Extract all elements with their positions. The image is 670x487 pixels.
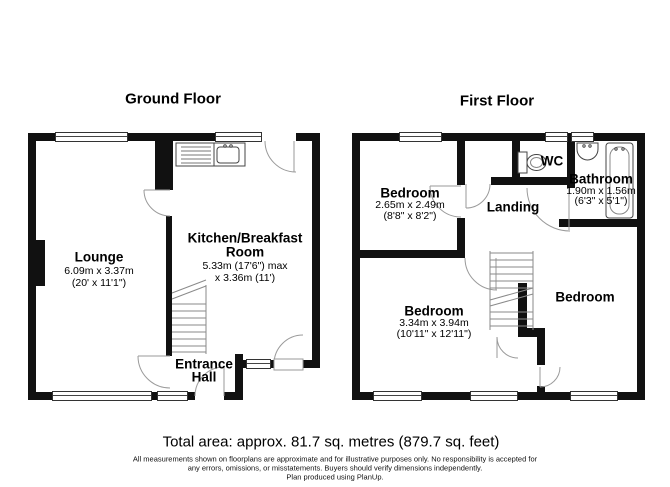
tap	[589, 145, 591, 147]
wall	[352, 133, 360, 400]
tap	[230, 145, 233, 148]
room-label-wc: WC	[541, 154, 564, 168]
stair-break	[172, 286, 206, 299]
staircase-ground	[172, 280, 206, 354]
wall-stairwell-jog	[518, 328, 545, 337]
wall-bedroom-top-bottom	[352, 250, 465, 258]
door-arcs-first	[430, 184, 570, 387]
door-arc	[274, 335, 303, 364]
wall-bedroom-divider	[537, 337, 545, 365]
wall	[312, 133, 320, 368]
window	[571, 132, 594, 142]
wall	[618, 392, 645, 400]
room-label-bathroom: Bathroom	[569, 172, 633, 186]
wall-divider-stub	[155, 141, 173, 190]
door-arc	[265, 141, 296, 172]
stair-break	[172, 280, 206, 293]
basin-shape	[577, 143, 598, 160]
room-label-hall: Hall	[192, 370, 217, 384]
window	[157, 391, 188, 401]
disclaimer-line-3: Plan produced using PlanUp.	[286, 473, 383, 481]
window	[545, 132, 568, 142]
room-label-kitchen-line2: Room	[226, 245, 264, 259]
wall	[352, 392, 373, 400]
disclaimer-line-1: All measurements shown on floorplans are…	[133, 455, 537, 463]
wall-bedroom-divider	[537, 386, 545, 400]
wall-wc-bottom	[491, 177, 568, 185]
window	[246, 359, 271, 369]
window	[373, 391, 422, 401]
door-arc	[465, 258, 497, 290]
room-dims-bedroom-left-metric: 3.34m x 3.94m	[399, 318, 468, 329]
room-label-kitchen: Kitchen/Breakfast	[188, 231, 303, 245]
floorplan-canvas: Ground Floor First Floor Lounge 6.09m x …	[0, 0, 670, 487]
wall-lounge-kitchen-divider	[166, 216, 172, 356]
wall	[637, 133, 645, 400]
room-dims-kitchen-metric2: x 3.36m (11')	[215, 273, 275, 284]
room-dims-bedroom-top-imperial: (8'8" x 8'2")	[384, 211, 437, 222]
room-dims-lounge-imperial: (20' x 11'1")	[72, 278, 126, 289]
ground-floor-title: Ground Floor	[125, 92, 221, 107]
wall-kitchen-bottom	[271, 360, 274, 368]
door-arc	[540, 367, 560, 387]
wall	[422, 392, 470, 400]
room-dims-bathroom-imperial: (6'3" x 5'1")	[575, 196, 628, 207]
chimney-breast	[36, 240, 45, 286]
room-label-bedroom-left: Bedroom	[404, 304, 463, 318]
linework-overlay	[0, 0, 670, 487]
room-dims-bedroom-left-imperial: (10'11" x 12'11")	[397, 329, 472, 340]
wall-kitchen-bottom	[303, 360, 320, 368]
window	[55, 132, 128, 142]
wall-kitchen-bottom	[235, 360, 246, 368]
window	[570, 391, 618, 401]
wall	[128, 133, 215, 141]
window	[52, 391, 152, 401]
door-arc	[497, 337, 518, 358]
first-floor-title: First Floor	[460, 94, 534, 109]
kitchen-sink-unit	[176, 143, 245, 166]
wall	[28, 392, 52, 400]
sink-bowl	[217, 147, 239, 163]
room-label-landing: Landing	[487, 200, 540, 214]
tap	[224, 145, 227, 148]
wall	[188, 392, 195, 400]
room-dims-bedroom-top-metric: 2.65m x 2.49m	[375, 200, 444, 211]
tap	[622, 148, 624, 150]
wall-bathroom-bottom	[559, 219, 645, 227]
window	[215, 132, 262, 142]
room-label-bedroom-right: Bedroom	[555, 290, 614, 304]
disclaimer-line-2: any errors, omissions, or misstatements.…	[188, 464, 483, 472]
basin	[577, 143, 598, 160]
wall	[442, 133, 545, 141]
window	[470, 391, 518, 401]
room-dims-kitchen-metric: 5.33m (17'6") max	[202, 261, 287, 272]
wall-bedroom-top-right	[457, 141, 465, 185]
drainer-lines	[181, 147, 211, 163]
tap	[615, 148, 617, 150]
total-area-text: Total area: approx. 81.7 sq. metres (879…	[163, 435, 500, 450]
room-label-bedroom-top: Bedroom	[380, 186, 439, 200]
wall	[28, 133, 36, 400]
room-dims-lounge-metric: 6.09m x 3.37m	[64, 266, 133, 277]
tap	[583, 145, 585, 147]
door-arc	[144, 190, 170, 216]
window	[399, 132, 442, 142]
door-arc	[138, 356, 170, 388]
wall-stairwell	[518, 283, 527, 331]
door-leaf-closed	[274, 359, 303, 370]
room-label-lounge: Lounge	[75, 250, 124, 264]
counter	[176, 143, 245, 166]
